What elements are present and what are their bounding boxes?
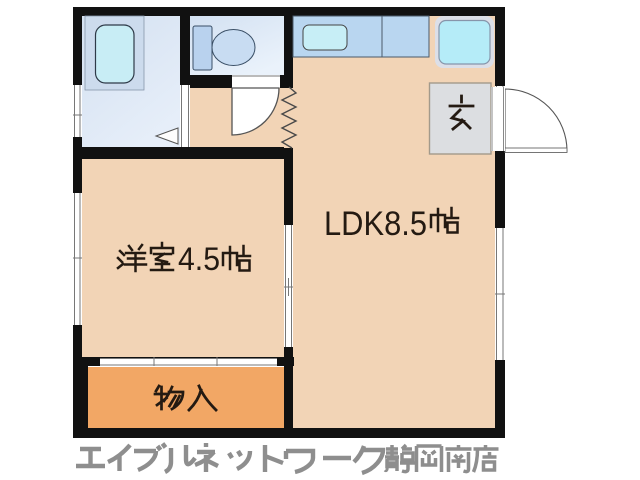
svg-text:4.5: 4.5	[178, 241, 220, 277]
svg-text:LDK8.5: LDK8.5	[324, 205, 427, 243]
